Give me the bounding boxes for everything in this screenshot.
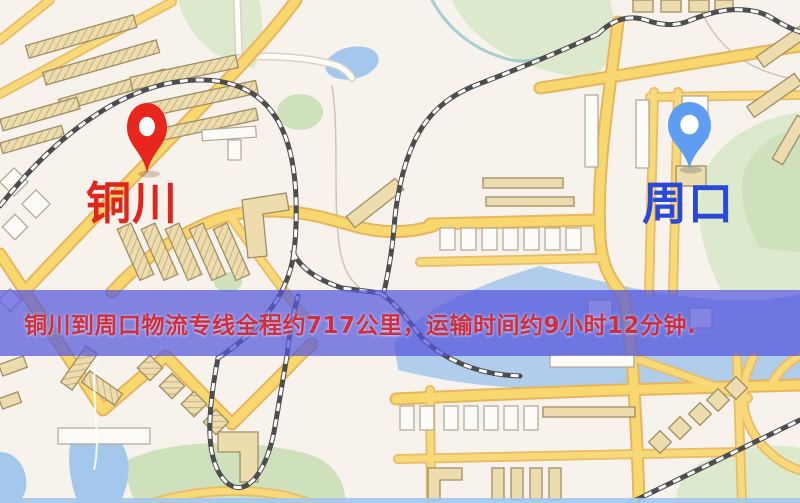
map-background: [0, 0, 800, 503]
map-pin-icon: [127, 103, 167, 173]
origin-pin[interactable]: [127, 103, 167, 173]
destination-label: 周口: [642, 181, 734, 226]
water-strip: [0, 498, 800, 503]
route-banner: 铜川到周口物流专线全程约717公里，运输时间约9小时12分钟.: [0, 290, 800, 356]
map-pin-icon: [668, 102, 711, 169]
origin-label: 铜川: [86, 181, 178, 226]
map-screenshot: 铜川到周口物流专线全程约717公里，运输时间约9小时12分钟. 铜川 周口: [0, 0, 800, 503]
destination-pin[interactable]: [668, 102, 711, 169]
route-banner-text: 铜川到周口物流专线全程约717公里，运输时间约9小时12分钟.: [24, 306, 696, 340]
